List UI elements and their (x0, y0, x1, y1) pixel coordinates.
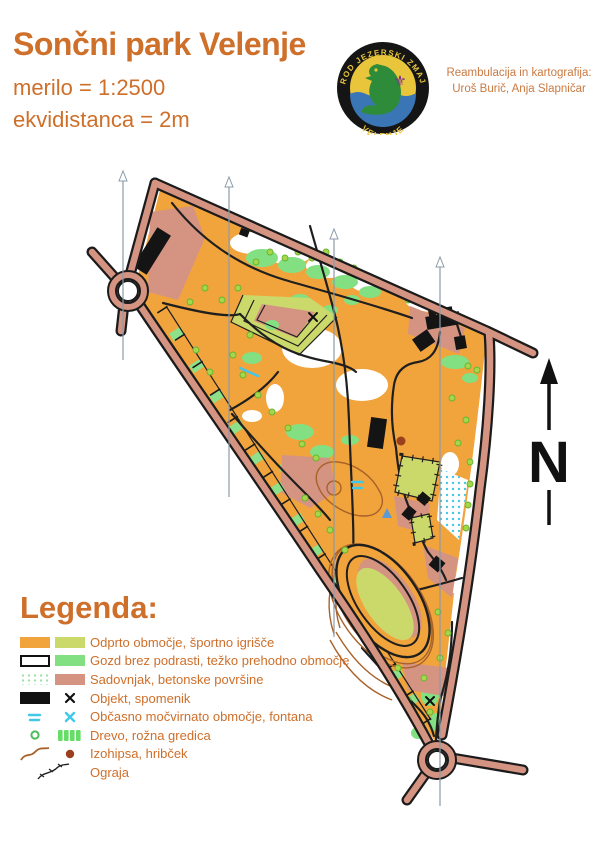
legend-label: Drevo, rožna gredica (90, 728, 211, 743)
orchard-swatch (20, 673, 50, 685)
legend-label: Izohipsa, hribček (90, 746, 188, 761)
fountain-x-icon (64, 711, 76, 723)
legend-row-fence: Ograja (20, 763, 349, 782)
legend-row-forest: Gozd brez podrasti, težko prehodno območ… (20, 652, 349, 671)
legend-row-tree: Drevo, rožna gredica (20, 726, 349, 745)
legend-row-contour: Izohipsa, hribček (20, 745, 349, 764)
sport-field-swatch (55, 637, 85, 648)
forest-swatch (20, 655, 50, 667)
building-swatch (20, 692, 50, 704)
legend-label: Sadovnjak, betonske površine (90, 672, 263, 687)
paved-swatch (55, 674, 85, 685)
legend: Legenda: Odprto območje, športno igrišče… (20, 590, 349, 782)
legend-row-orchard: Sadovnjak, betonske površine (20, 670, 349, 689)
page-title: Sončni park Velenje (13, 26, 306, 63)
legend-label: Odprto območje, športno igrišče (90, 635, 274, 650)
map-equidistance: ekvidistanca = 2m (13, 104, 306, 136)
legend-label: Objekt, spomenik (90, 691, 190, 706)
fleur-de-lis-icon: ⚜ (393, 73, 406, 90)
legend-label: Ograja (90, 765, 129, 780)
knoll-dot (397, 437, 406, 446)
monument-x-icon (64, 692, 76, 704)
scout-badge-logo: ⚜ ROD JEZERSKI ZMAJ VELENJE (336, 41, 430, 135)
legend-title: Legenda: (20, 590, 349, 626)
legend-row-marsh: Občasno močvirnato območje, fontana (20, 707, 349, 726)
north-arrow: N (519, 350, 581, 530)
north-label: N (528, 430, 570, 495)
map-sheet: Sončni park Velenje merilo = 1:2500 ekvi… (0, 0, 600, 854)
dragon-eye (374, 68, 377, 71)
flowerbed-icon (57, 729, 83, 742)
marsh-icon (27, 711, 43, 723)
legend-row-open-area: Odprto območje, športno igrišče (20, 633, 349, 652)
legend-row-object: Objekt, spomenik (20, 689, 349, 708)
contour-icon (20, 746, 50, 762)
attribution-line2: Uroš Burič, Anja Slapničar (444, 82, 594, 98)
legend-label: Občasno močvirnato območje, fontana (90, 709, 313, 724)
attribution-line1: Reambulacija in kartografija: (444, 66, 594, 82)
legend-label: Gozd brez podrasti, težko prehodno območ… (90, 653, 349, 668)
open-area-swatch (20, 637, 50, 648)
attribution: Reambulacija in kartografija: Uroš Burič… (444, 66, 594, 97)
fence-icon (36, 763, 70, 781)
knoll-icon (64, 748, 76, 760)
north-arrowhead-icon (540, 358, 558, 384)
map-scale: merilo = 1:2500 (13, 72, 306, 104)
rough-open-swatch (55, 655, 85, 666)
tree-icon (29, 729, 41, 741)
header: Sončni park Velenje merilo = 1:2500 ekvi… (13, 26, 306, 136)
